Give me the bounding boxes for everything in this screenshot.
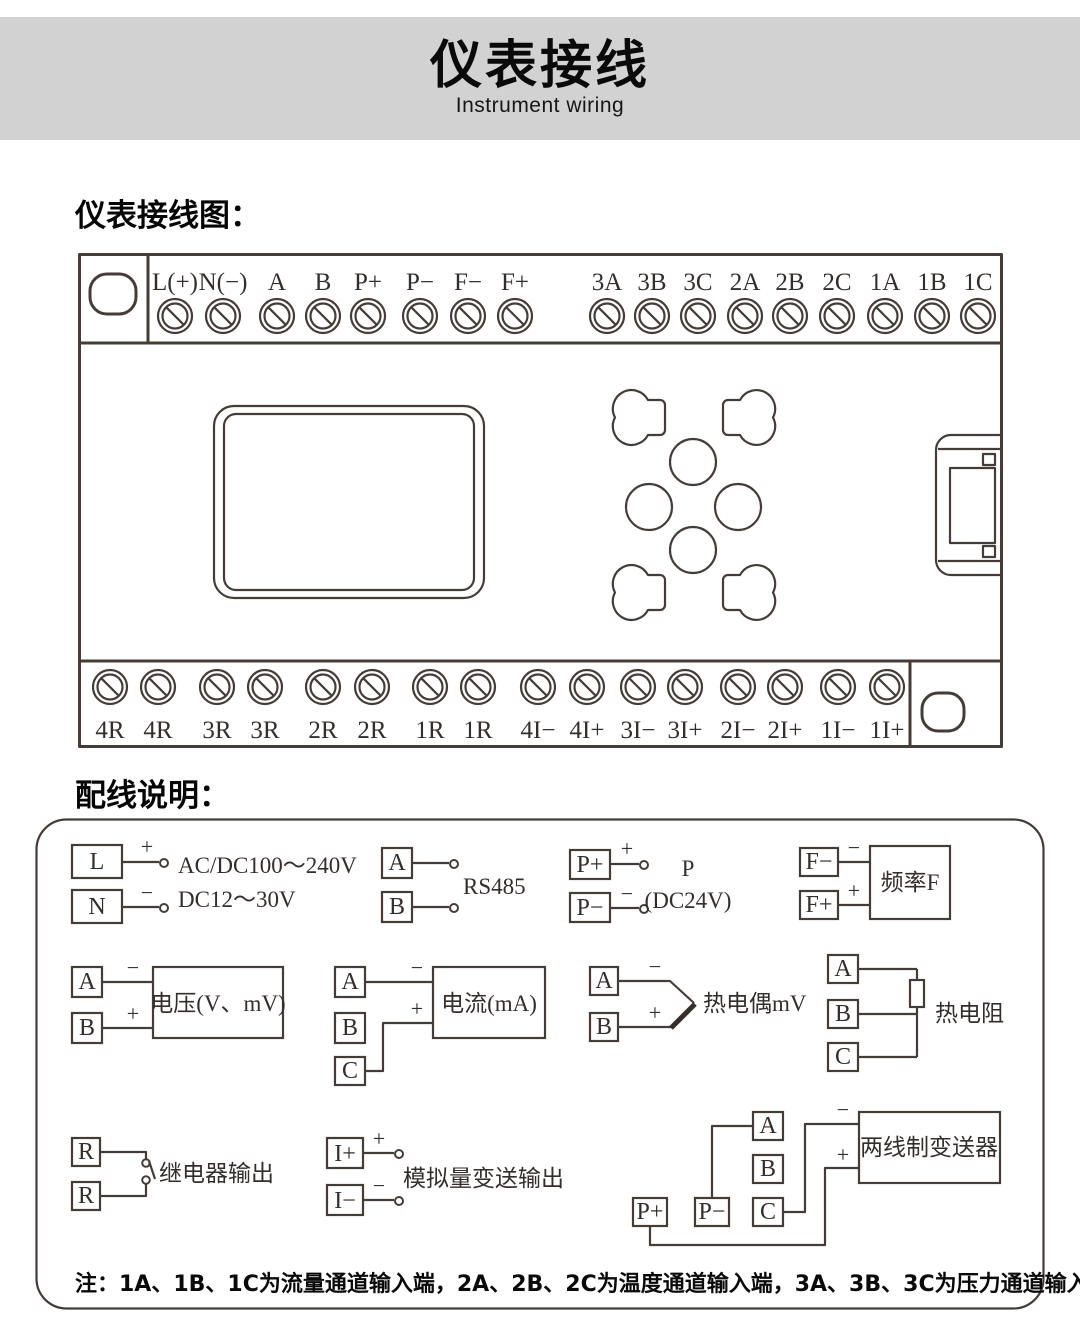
polarity-sign: +	[127, 1001, 139, 1026]
terminal-box-label: R	[78, 1139, 94, 1165]
polarity-sign: −	[837, 1097, 849, 1122]
rs485-diagram: A B RS485	[382, 848, 526, 922]
terminal-box-label: F+	[806, 892, 833, 918]
diagram-label: 电压(V、mV)	[150, 991, 285, 1016]
terminal-label: 3I−	[621, 717, 656, 744]
diagram-label: RS485	[463, 874, 526, 899]
terminal-box-label: A	[388, 850, 406, 876]
key-left	[626, 484, 672, 530]
terminal-box-label: B	[79, 1015, 95, 1041]
key-up	[670, 439, 716, 485]
terminal-label: 1B	[917, 269, 946, 296]
instrument-wiring-diagram: L(+) N(−) A B P+ P− F− F+ 3A 3B 3C 2A 2B…	[78, 253, 1003, 748]
key-top-left	[613, 390, 665, 445]
terminal-label: L(+)	[152, 269, 198, 296]
polarity-sign: −	[411, 955, 423, 980]
power-supply-diagram: L N + − AC/DC100～240V DC12～30V	[72, 834, 357, 923]
polarity-sign: −	[141, 880, 153, 905]
polarity-sign: −	[848, 835, 860, 860]
terminal-label: 2A	[730, 269, 761, 296]
polarity-sign: +	[141, 834, 153, 859]
terminal-label: 4R	[95, 717, 125, 744]
terminal-label: 1C	[963, 269, 992, 296]
terminal-label: 3B	[637, 269, 666, 296]
relay-output-diagram: R R 继电器输出	[72, 1138, 274, 1210]
top-terminal-strip: L(+) N(−) A B P+ P− F− F+ 3A 3B 3C 2A 2B…	[152, 269, 995, 333]
switch-blade	[149, 1161, 155, 1179]
terminal-label: 3I+	[668, 717, 703, 744]
terminal-label: P+	[354, 269, 382, 296]
terminal-label: 1I+	[870, 717, 905, 744]
terminal-box-label: N	[88, 894, 105, 920]
terminal-box-label: A	[341, 969, 359, 995]
terminal-label: 4I+	[570, 717, 605, 744]
wiring-note: 注：1A、1B、1C为流量通道输入端，2A、2B、2C为温度通道输入端，3A、3…	[75, 1271, 1080, 1297]
diagram-label: 继电器输出	[159, 1161, 274, 1186]
polarity-sign: +	[649, 1000, 661, 1025]
terminal-box-label: C	[342, 1058, 358, 1084]
page-title: 仪表接线	[430, 39, 650, 94]
terminal-label: 2R	[357, 717, 387, 744]
mounting-slot-top-left	[90, 274, 136, 314]
terminal-box-label: A	[834, 956, 852, 982]
page-subtitle: Instrument wiring	[456, 94, 624, 118]
wiring-instructions-panel: L N + − AC/DC100～240V DC12～30V A B RS485	[35, 818, 1045, 1310]
manual-page: 仪表接线 Instrument wiring 仪表接线图：	[0, 0, 1080, 1324]
terminal-box-label: I+	[334, 1141, 356, 1167]
terminal-label: 2C	[822, 269, 851, 296]
polarity-sign: +	[411, 996, 423, 1021]
terminal-box-label: B	[389, 894, 405, 920]
terminal-box-label: B	[835, 1001, 851, 1027]
terminal-label: 1I−	[821, 717, 856, 744]
voltage-input-diagram: A B 电压(V、mV) − +	[72, 955, 286, 1043]
thermocouple-diagram: A B − + 热电偶mV	[590, 954, 807, 1041]
terminal-label: 4I−	[521, 717, 556, 744]
rtd-diagram: A B C 热电阻	[828, 955, 1004, 1071]
terminal-box-label: P−	[577, 895, 604, 921]
key-right	[715, 484, 761, 530]
terminal-box-label: P+	[637, 1199, 664, 1225]
terminal-box-label: B	[342, 1015, 358, 1041]
terminal-label: B	[315, 269, 332, 296]
terminal-label: 3R	[202, 717, 232, 744]
terminal-box-label: B	[760, 1156, 776, 1182]
analog-output-diagram: I+ I− + − 模拟量变送输出	[327, 1126, 564, 1215]
terminal-label: 1R	[463, 717, 493, 744]
diagram-label: 两线制变送器	[860, 1135, 998, 1160]
diagram-label: 频率F	[881, 870, 940, 895]
polarity-sign: +	[621, 836, 633, 861]
diagram-label: P	[682, 856, 695, 881]
resistor-symbol	[910, 980, 924, 1007]
two-wire-transmitter-diagram: A B C P+ P− 两线制变送器 − +	[633, 1097, 1000, 1245]
polarity-sign: +	[848, 878, 860, 903]
terminal-box-label: B	[596, 1014, 612, 1040]
diagram-label: AC/DC100～240V	[178, 853, 357, 878]
side-connector	[936, 435, 1003, 575]
terminal-label: A	[268, 269, 286, 296]
terminal-box-label: A	[595, 968, 613, 994]
terminal-label: F+	[501, 269, 529, 296]
polarity-sign: +	[837, 1142, 849, 1167]
terminal-box-label: I−	[334, 1188, 356, 1214]
terminal-box-label: P−	[699, 1199, 726, 1225]
page-header: 仪表接线 Instrument wiring	[0, 17, 1080, 140]
terminal-label: 3R	[250, 717, 280, 744]
terminal-label: F−	[454, 269, 482, 296]
mounting-slot-bottom-right	[922, 693, 964, 731]
polarity-sign: −	[649, 954, 661, 979]
frequency-diagram: F− F+ 频率F − +	[800, 835, 950, 919]
key-bottom-left	[613, 565, 665, 620]
terminal-box-label: C	[835, 1044, 851, 1070]
terminal-box-label: R	[78, 1183, 94, 1209]
terminal-box-label: L	[90, 849, 105, 875]
terminal-box-label: A	[759, 1113, 777, 1139]
sensor-power-diagram: P+ P− + − P (DC24V)	[570, 836, 731, 922]
key-bottom-right	[723, 565, 775, 620]
keypad	[613, 390, 775, 620]
display-window	[214, 406, 484, 598]
polarity-sign: −	[373, 1173, 385, 1198]
diagram-label: 热电阻	[935, 1001, 1004, 1026]
diagram-label: 电流(mA)	[441, 991, 537, 1016]
diagram-label: DC12～30V	[178, 887, 296, 912]
key-down	[670, 527, 716, 573]
terminal-label: 2R	[308, 717, 338, 744]
terminal-label: 2I+	[768, 717, 803, 744]
key-top-right	[723, 390, 775, 445]
polarity-sign: −	[127, 955, 139, 980]
diagram-label: 模拟量变送输出	[403, 1166, 564, 1191]
terminal-label: 2I−	[721, 717, 756, 744]
terminal-label: 2B	[775, 269, 804, 296]
terminal-box-label: A	[78, 969, 96, 995]
bottom-terminal-strip: 4R 4R 3R 3R 2R 2R 1R 1R 4I− 4I+ 3I− 3I+ …	[93, 670, 904, 744]
terminal-label: 3A	[592, 269, 623, 296]
terminal-box-label: C	[760, 1199, 776, 1225]
terminal-label: N(−)	[199, 269, 248, 296]
terminal-box-label: F−	[806, 849, 833, 875]
terminal-box-label: P+	[577, 852, 604, 878]
diagram-label: (DC24V)	[645, 888, 732, 913]
terminal-label: 1R	[415, 717, 445, 744]
diagram-section-heading: 仪表接线图：	[75, 190, 261, 235]
terminal-label: 4R	[143, 717, 173, 744]
current-input-diagram: A B C 电流(mA) − +	[335, 955, 545, 1085]
terminal-label: P−	[406, 269, 434, 296]
polarity-sign: −	[621, 881, 633, 906]
terminal-label: 1A	[870, 269, 901, 296]
diagram-label: 热电偶mV	[703, 991, 807, 1016]
terminal-label: 3C	[683, 269, 712, 296]
polarity-sign: +	[373, 1126, 385, 1151]
wiring-section-heading: 配线说明：	[75, 770, 230, 815]
